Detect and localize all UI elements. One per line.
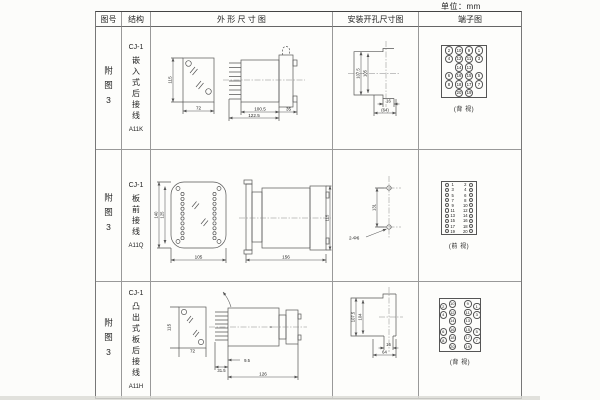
terminal-circle: 20 (449, 343, 457, 351)
model-label: CJ-1 (129, 182, 144, 189)
dim-front-width: 72 (190, 349, 196, 354)
dim-front-height: 115 (168, 76, 173, 84)
outline-drawing-a11h: 115 72 31.5 9.5 126 (151, 282, 332, 397)
terminal-circle: 20 (455, 89, 464, 98)
terminal-circle (445, 214, 449, 218)
terminal-circle: 15 (465, 72, 474, 81)
terminal-circle: 11 (465, 55, 474, 64)
terminal-diagram-rear-stud: 2109141211314136161558181772019 (439, 298, 481, 352)
terminal-circle: 6 (440, 328, 448, 336)
row1-figure-no-cell: 附图3 (96, 27, 122, 150)
terminal-circle: 17 (465, 80, 474, 89)
terminal-circle: 3 (475, 55, 484, 64)
terminal-circle: 8 (445, 80, 454, 89)
terminal-circle (445, 203, 449, 207)
structure-desc-label: 凸出式板后接线 (131, 302, 142, 379)
terminal-spacer (473, 320, 481, 328)
install-drawing-a11q: 131 2-Φ6 (333, 150, 418, 281)
terminal-circle (445, 193, 449, 197)
dim-cutout-outer: 107.5 (356, 68, 361, 79)
terminal-circle (445, 229, 449, 233)
row3-terminal-cell: 2109141211314136161558181772019 (背 视) (419, 282, 521, 398)
terminal-circle (469, 219, 473, 223)
terminal-circle: 19 (464, 343, 472, 351)
terminal-spacer (440, 320, 448, 328)
terminal-circle: 14 (449, 317, 457, 325)
row1-structure-cell: CJ-1 嵌入式后接线 A11K (122, 27, 151, 150)
terminal-spacer (473, 345, 481, 353)
row2-structure-cell: CJ-1 板前接线 A11Q (122, 150, 151, 282)
terminal-circle: 3 (473, 311, 481, 319)
dim-side-offset: 9.5 (244, 358, 250, 363)
terminal-spacer (445, 89, 454, 98)
install-drawing-a11k: 107.5 105 16 (64) (333, 27, 418, 149)
terminal-circle: 18 (455, 80, 464, 89)
col-header-outline-dims: 外 形 尺 寸 图 (151, 12, 333, 27)
terminal-cluster-gap (458, 312, 463, 313)
terminal-cluster-gap (458, 346, 463, 347)
terminal-circle (469, 193, 473, 197)
type-code-label: A11Q (129, 243, 144, 249)
row3-install-cell: 107.5 104 16 64 (333, 282, 419, 398)
type-code-label: A11K (129, 127, 143, 133)
terminal-circle: 17 (464, 334, 472, 342)
col-header-figure-no: 图号 (96, 12, 122, 27)
terminal-view-caption: (前 视) (431, 241, 487, 250)
terminal-circle: 16 (455, 72, 464, 81)
terminal-cluster-gap (458, 303, 463, 304)
figure-no-label: 附图3 (103, 318, 115, 363)
page-edge-shadow (0, 396, 540, 400)
terminal-circle: 7 (473, 337, 481, 345)
terminal-circle: 10 (449, 300, 457, 308)
terminal-circle: 1 (473, 303, 481, 311)
terminal-row: 21091 (445, 46, 484, 55)
terminal-circle: 10 (455, 46, 464, 55)
dim-front-width: 105 (195, 255, 203, 260)
terminal-row: 412113 (445, 55, 484, 64)
install-drawing-a11h: 107.5 104 16 64 (333, 282, 418, 397)
dim-side-body: 100.5 (254, 107, 266, 112)
spec-table: 图号 结构 外 形 尺 寸 图 安装开孔尺寸图 端子图 附图3 CJ-1 嵌入式… (95, 11, 522, 399)
terminal-circle (469, 203, 473, 207)
row1-outline-cell: 115 72 100.5 122.5 35 (151, 27, 333, 150)
terminal-circle: 2 (445, 46, 454, 55)
terminal-circle (445, 224, 449, 228)
dim-front-width: 72 (196, 106, 202, 111)
terminal-circle (469, 208, 473, 212)
dim-side-length: 156 (282, 255, 290, 260)
terminal-view-caption: (背 视) (441, 104, 487, 113)
row1-terminal-cell: 2109141211314136161558181772019 (背 视) (419, 27, 521, 150)
dim-side-comb: 31.5 (217, 368, 226, 373)
terminal-circle (445, 183, 449, 187)
terminal-circle (469, 198, 473, 202)
terminal-circle (469, 229, 473, 233)
terminal-circle: 5 (475, 72, 484, 81)
terminal-circle: 12 (449, 309, 457, 317)
terminal-circle: 15 (464, 326, 472, 334)
terminal-circle (469, 214, 473, 218)
figure-no-label: 附图3 (103, 66, 115, 111)
terminal-circle: 14 (455, 63, 464, 72)
model-label: CJ-1 (129, 44, 144, 51)
terminal-pair: 19 (445, 229, 455, 234)
dim-span-width: 64 (382, 350, 387, 355)
terminal-circle: 1 (475, 46, 484, 55)
col-header-install-holes: 安装开孔尺寸图 (333, 12, 419, 27)
dim-front-outer: 140 (154, 211, 159, 219)
terminal-circle (445, 188, 449, 192)
terminal-circle: 2 (440, 303, 448, 311)
terminal-circle: 13 (464, 317, 472, 325)
terminal-diagram-rear: 2109141211314136161558181772019 (441, 45, 487, 98)
terminal-spacer (445, 63, 454, 72)
terminal-circle: 7 (475, 80, 484, 89)
terminal-circle: 13 (465, 63, 474, 72)
terminal-cluster-gap (458, 337, 463, 338)
dim-span-width: (64) (381, 108, 389, 113)
terminal-row: 1413 (445, 63, 484, 72)
terminal-number: 20 (463, 229, 468, 234)
terminal-circle: 18 (449, 334, 457, 342)
type-code-label: A11H (129, 384, 144, 390)
terminal-cluster-gap (458, 320, 463, 321)
row3-structure-cell: CJ-1 凸出式板后接线 A11H (122, 282, 151, 398)
terminal-circle: 5 (473, 328, 481, 336)
terminal-spacer (475, 63, 484, 72)
col-header-terminal-diagram: 端子图 (419, 12, 521, 27)
row3-outline-cell: 115 72 31.5 9.5 126 (151, 282, 333, 398)
terminal-circle: 11 (464, 309, 472, 317)
dim-cutout-outer: 107.5 (351, 311, 356, 322)
terminal-circle: 16 (449, 326, 457, 334)
terminal-circle (469, 188, 473, 192)
row2-figure-no-cell: 附图3 (96, 150, 122, 282)
terminal-row: 2019 (445, 89, 484, 98)
terminal-circle (445, 198, 449, 202)
outline-drawing-a11q: 140 125 105 156 115 (151, 150, 332, 281)
dim-hole-pitch: 131 (372, 203, 377, 211)
dim-side-length: 126 (259, 372, 267, 377)
dim-side-height: 115 (325, 214, 330, 221)
col-header-structure: 结构 (122, 12, 151, 27)
outline-drawing-a11k: 115 72 100.5 122.5 35 (151, 27, 332, 149)
terminal-number: 19 (450, 229, 455, 234)
dim-front-height: 115 (167, 323, 172, 331)
row2-install-cell: 131 2-Φ6 (333, 150, 419, 282)
terminal-circle: 6 (445, 72, 454, 81)
terminal-circle: 4 (440, 311, 448, 319)
terminal-circle: 19 (465, 89, 474, 98)
terminal-circle (445, 208, 449, 212)
terminal-row: 1920 (442, 229, 476, 234)
terminal-circle (445, 219, 449, 223)
terminal-circle: 9 (464, 300, 472, 308)
terminal-row: 818177 (445, 80, 484, 89)
dim-slot-width: 16 (386, 99, 391, 104)
dim-cutout-inner: 104 (358, 313, 363, 321)
terminal-spacer (440, 345, 448, 353)
dim-side-total: 122.5 (248, 113, 260, 118)
dim-side-flange: 35 (286, 107, 292, 112)
terminal-diagram-front: 1234567891011121314151617181920 (441, 181, 477, 235)
structure-desc-label: 嵌入式后接线 (131, 56, 142, 122)
row3-figure-no-cell: 附图3 (96, 282, 122, 398)
dim-hole-spec: 2-Φ6 (349, 236, 360, 241)
terminal-row: 21091 (440, 300, 481, 308)
terminal-circle: 9 (465, 46, 474, 55)
terminal-cluster-gap (458, 329, 463, 330)
dim-cutout-inner: 105 (363, 69, 368, 77)
terminal-pair: 20 (463, 229, 473, 234)
structure-desc-label: 板前接线 (131, 194, 142, 238)
terminal-circle (469, 224, 473, 228)
terminal-circle: 4 (445, 55, 454, 64)
figure-no-label: 附图3 (103, 193, 115, 238)
row2-outline-cell: 140 125 105 156 115 (151, 150, 333, 282)
terminal-circle: 8 (440, 337, 448, 345)
row1-install-cell: 107.5 105 16 (64) (333, 27, 419, 150)
row2-terminal-cell: 1234567891011121314151617181920 (前 视) (419, 150, 521, 282)
dim-slot-width: 16 (386, 342, 391, 347)
terminal-row: 616155 (445, 72, 484, 81)
dim-front-inner: 125 (160, 211, 165, 219)
terminal-view-caption: (背 视) (429, 357, 491, 366)
terminal-spacer (475, 89, 484, 98)
terminal-circle: 12 (455, 55, 464, 64)
model-label: CJ-1 (129, 290, 144, 297)
terminal-circle (469, 183, 473, 187)
